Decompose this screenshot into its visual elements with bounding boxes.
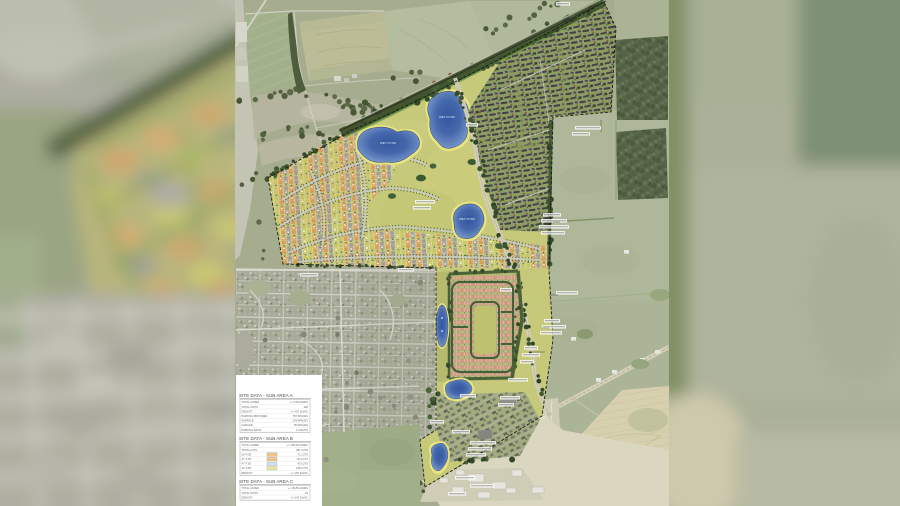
- svg-text:+/- 2.87 DU/AC: +/- 2.87 DU/AC: [290, 471, 308, 475]
- svg-text:392: 392: [304, 405, 309, 409]
- svg-text:278 SPACES: 278 SPACES: [293, 419, 309, 423]
- svg-text:+/- 39.86 ACRES: +/- 39.86 ACRES: [288, 486, 308, 490]
- svg-text:PARKING RATIO: PARKING RATIO: [242, 428, 262, 432]
- svg-text:SURFACE: SURFACE: [242, 419, 255, 423]
- svg-text:TOTAL ACRES: TOTAL ACRES: [242, 443, 260, 447]
- svg-text:GARAGE: GARAGE: [242, 423, 253, 427]
- svg-text:TOTAL ACRES: TOTAL ACRES: [242, 400, 260, 404]
- svg-text:+/- 128.49 ACRES: +/- 128.49 ACRES: [287, 443, 309, 447]
- svg-text:+/- 4.87 DU/AC: +/- 4.87 DU/AC: [290, 409, 308, 413]
- svg-text:+/- 0.47 DU/AC: +/- 0.47 DU/AC: [290, 495, 308, 499]
- svg-text:787 SPACES: 787 SPACES: [293, 414, 309, 418]
- svg-text:114 LOTS: 114 LOTS: [296, 457, 308, 461]
- svg-text:50' R 50': 50' R 50': [242, 452, 253, 456]
- svg-text:TOTAL LOTS: TOTAL LOTS: [242, 448, 258, 452]
- svg-text:1.9 RATIO: 1.9 RATIO: [296, 428, 308, 432]
- svg-text:WET POND: WET POND: [380, 141, 397, 145]
- svg-text:SITE DATA - SUB AREA B: SITE DATA - SUB AREA B: [239, 436, 293, 441]
- svg-text:DENSITY: DENSITY: [242, 409, 254, 413]
- svg-text:43 LOTS: 43 LOTS: [298, 462, 309, 466]
- svg-text:WET POND: WET POND: [439, 115, 456, 119]
- svg-text:TOTAL ACRES: TOTAL ACRES: [242, 486, 260, 490]
- svg-text:+/- 0.08 ACRES: +/- 0.08 ACRES: [290, 400, 309, 404]
- svg-text:148 LOTS: 148 LOTS: [296, 466, 308, 470]
- svg-text:PARKING PROVIDED: PARKING PROVIDED: [242, 414, 268, 418]
- svg-text:71 LOTS: 71 LOTS: [298, 452, 309, 456]
- svg-text:47' S 50': 47' S 50': [242, 457, 252, 461]
- svg-text:42' S 50': 42' S 50': [242, 466, 252, 470]
- svg-text:TOTAL UNITS: TOTAL UNITS: [242, 491, 259, 495]
- svg-text:SITE DATA - SUB AREA A: SITE DATA - SUB AREA A: [239, 393, 294, 398]
- svg-text:47' F 50': 47' F 50': [242, 462, 252, 466]
- svg-text:WET POND: WET POND: [459, 217, 476, 221]
- svg-text:TOTAL UNITS: TOTAL UNITS: [242, 405, 259, 409]
- svg-text:DENSITY: DENSITY: [242, 471, 254, 475]
- svg-text:DENSITY: DENSITY: [242, 495, 254, 499]
- svg-text:387 LOTS: 387 LOTS: [296, 448, 308, 452]
- svg-text:SITE DATA - SUB AREA C: SITE DATA - SUB AREA C: [239, 479, 294, 484]
- svg-text:89 SPACES: 89 SPACES: [294, 423, 308, 427]
